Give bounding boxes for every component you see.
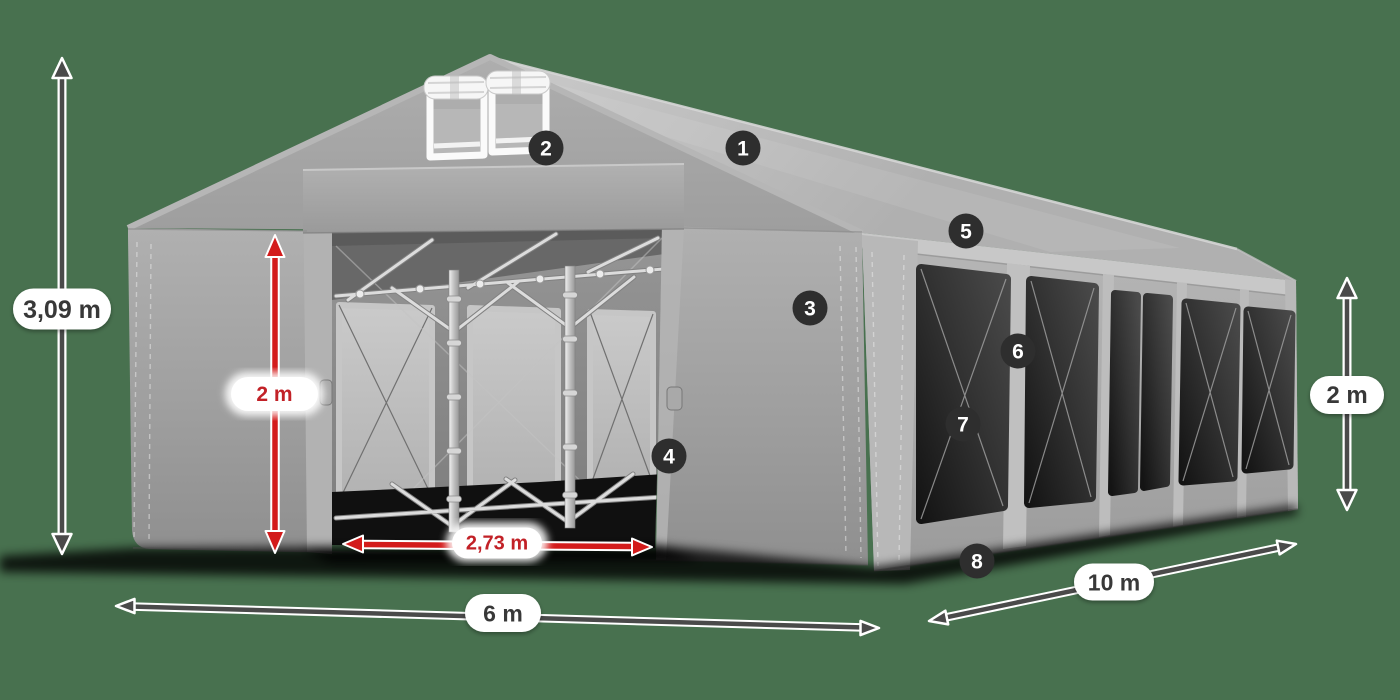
svg-text:3,09 m: 3,09 m: [23, 296, 101, 324]
interior-pole-2: [565, 266, 575, 528]
side-door-window-right: [1144, 297, 1169, 487]
svg-text:3: 3: [804, 298, 816, 321]
tent-diagram-canvas: 3,09 m 2 m 2,73 m 6 m: [0, 0, 1400, 700]
dimension-label-side-height: 2 m: [1310, 376, 1384, 414]
feature-badge-3: 3: [793, 291, 828, 326]
dimension-label-front-width: 6 m: [465, 594, 541, 632]
svg-text:1: 1: [737, 138, 749, 161]
door-header: [303, 164, 684, 233]
svg-text:4: 4: [663, 446, 675, 469]
side-door-window-left: [1112, 294, 1137, 492]
feature-badge-1: 1: [726, 131, 761, 166]
svg-text:7: 7: [957, 414, 969, 437]
dimension-label-door-width: 2,73 m: [452, 528, 542, 559]
interior-far-wall-panel-2: [470, 308, 558, 494]
feature-badge-6: 6: [1001, 334, 1036, 369]
dimension-label-door-height: 2 m: [231, 377, 318, 411]
gable-vent-left: [424, 75, 488, 159]
door-opening-interior: [332, 226, 664, 548]
dimension-label-total-height: 3,09 m: [13, 289, 111, 330]
feature-badge-2: 2: [529, 131, 564, 166]
svg-text:5: 5: [960, 221, 972, 244]
svg-text:8: 8: [971, 551, 983, 574]
svg-text:2,73 m: 2,73 m: [466, 533, 528, 555]
interior-pole-1: [449, 270, 459, 532]
svg-text:2 m: 2 m: [1326, 382, 1367, 409]
svg-text:2: 2: [540, 138, 552, 161]
svg-text:6 m: 6 m: [483, 601, 523, 627]
svg-text:6: 6: [1012, 341, 1024, 364]
dimension-label-side-length: 10 m: [1074, 564, 1154, 601]
feature-badge-4: 4: [652, 439, 687, 474]
svg-text:2 m: 2 m: [256, 383, 292, 406]
feature-badge-8: 8: [960, 544, 995, 579]
feature-badge-5: 5: [949, 214, 984, 249]
feature-badge-7: 7: [946, 407, 981, 442]
svg-text:10 m: 10 m: [1088, 570, 1140, 596]
front-door-panel-right: [656, 226, 868, 565]
door-handle-right: [667, 387, 682, 410]
